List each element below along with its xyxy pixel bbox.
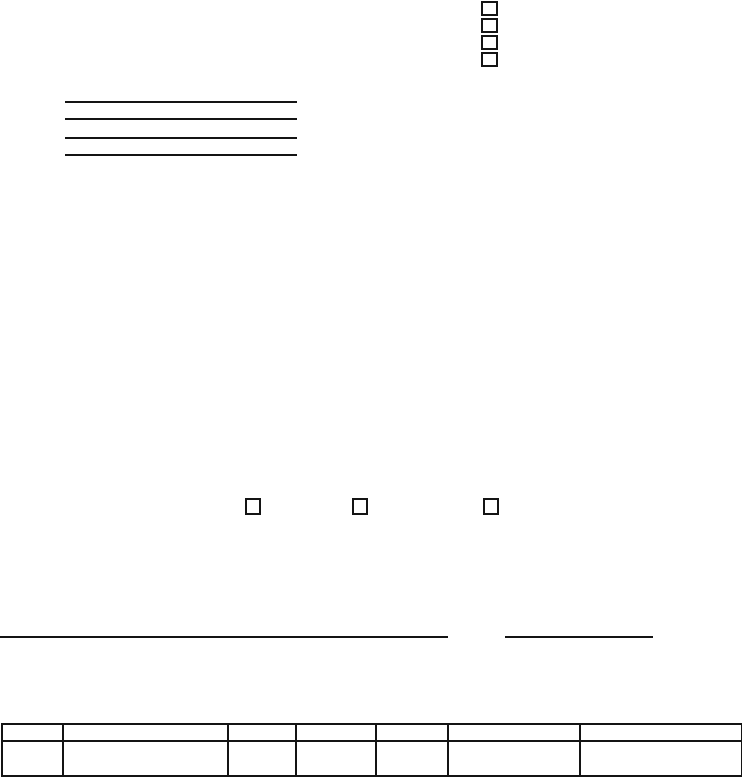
blank-line-1	[65, 101, 297, 103]
blank-line-2	[65, 118, 297, 120]
header-cell	[296, 724, 376, 741]
checkbox-stack-4[interactable]	[481, 52, 498, 67]
table-header-row	[2, 724, 742, 741]
form-page	[0, 0, 742, 781]
header-cell	[228, 724, 296, 741]
table-row	[2, 741, 742, 776]
header-cell	[2, 724, 63, 741]
option-checkbox-3[interactable]	[483, 498, 499, 515]
header-cell	[63, 724, 228, 741]
table-cell	[580, 741, 742, 776]
checkbox-stack-1[interactable]	[481, 1, 498, 16]
checkbox-stack-2[interactable]	[481, 18, 498, 33]
blank-line-4	[65, 154, 297, 156]
table-cell	[296, 741, 376, 776]
header-cell	[448, 724, 580, 741]
table-cell	[376, 741, 448, 776]
option-checkbox-1[interactable]	[245, 498, 261, 515]
checkbox-stack-3[interactable]	[481, 35, 498, 50]
table-cell	[2, 741, 63, 776]
table-cell	[228, 741, 296, 776]
table-cell	[63, 741, 228, 776]
blank-line-3	[65, 137, 297, 139]
bottom-table	[1, 723, 742, 777]
table-cell	[448, 741, 580, 776]
header-cell	[376, 724, 448, 741]
option-checkbox-2[interactable]	[352, 498, 368, 515]
signature-line	[0, 636, 448, 638]
header-cell	[580, 724, 742, 741]
top-checkbox-stack	[481, 1, 498, 69]
date-line	[505, 636, 653, 638]
